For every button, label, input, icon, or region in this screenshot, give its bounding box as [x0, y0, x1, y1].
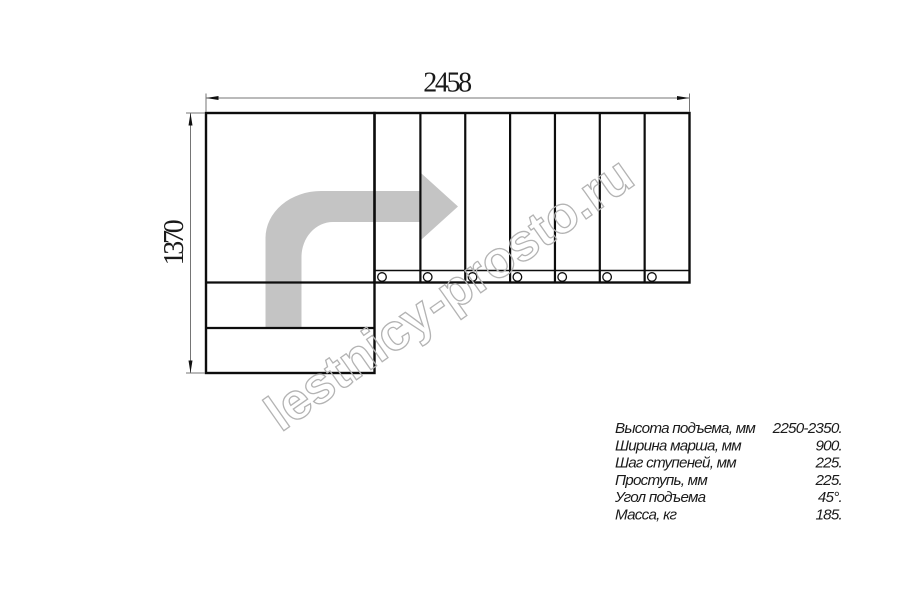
- svg-text:Масса, кг: Масса, кг: [615, 507, 678, 524]
- svg-text:Высота подъема, мм: Высота подъема, мм: [615, 420, 756, 437]
- svg-text:225.: 225.: [814, 455, 842, 472]
- svg-text:Проступь, мм: Проступь, мм: [615, 472, 708, 489]
- svg-text:2250-2350.: 2250-2350.: [772, 420, 842, 437]
- svg-text:Угол подъема: Угол подъема: [614, 489, 706, 506]
- svg-text:1370: 1370: [159, 220, 190, 265]
- svg-text:Шаг ступеней, мм: Шаг ступеней, мм: [615, 455, 737, 472]
- svg-text:225.: 225.: [814, 472, 842, 489]
- svg-text:45°.: 45°.: [818, 489, 842, 506]
- svg-text:900.: 900.: [815, 437, 842, 454]
- svg-text:Ширина марша, мм: Ширина марша, мм: [615, 437, 742, 454]
- svg-text:2458: 2458: [423, 68, 471, 99]
- svg-text:185.: 185.: [815, 507, 842, 524]
